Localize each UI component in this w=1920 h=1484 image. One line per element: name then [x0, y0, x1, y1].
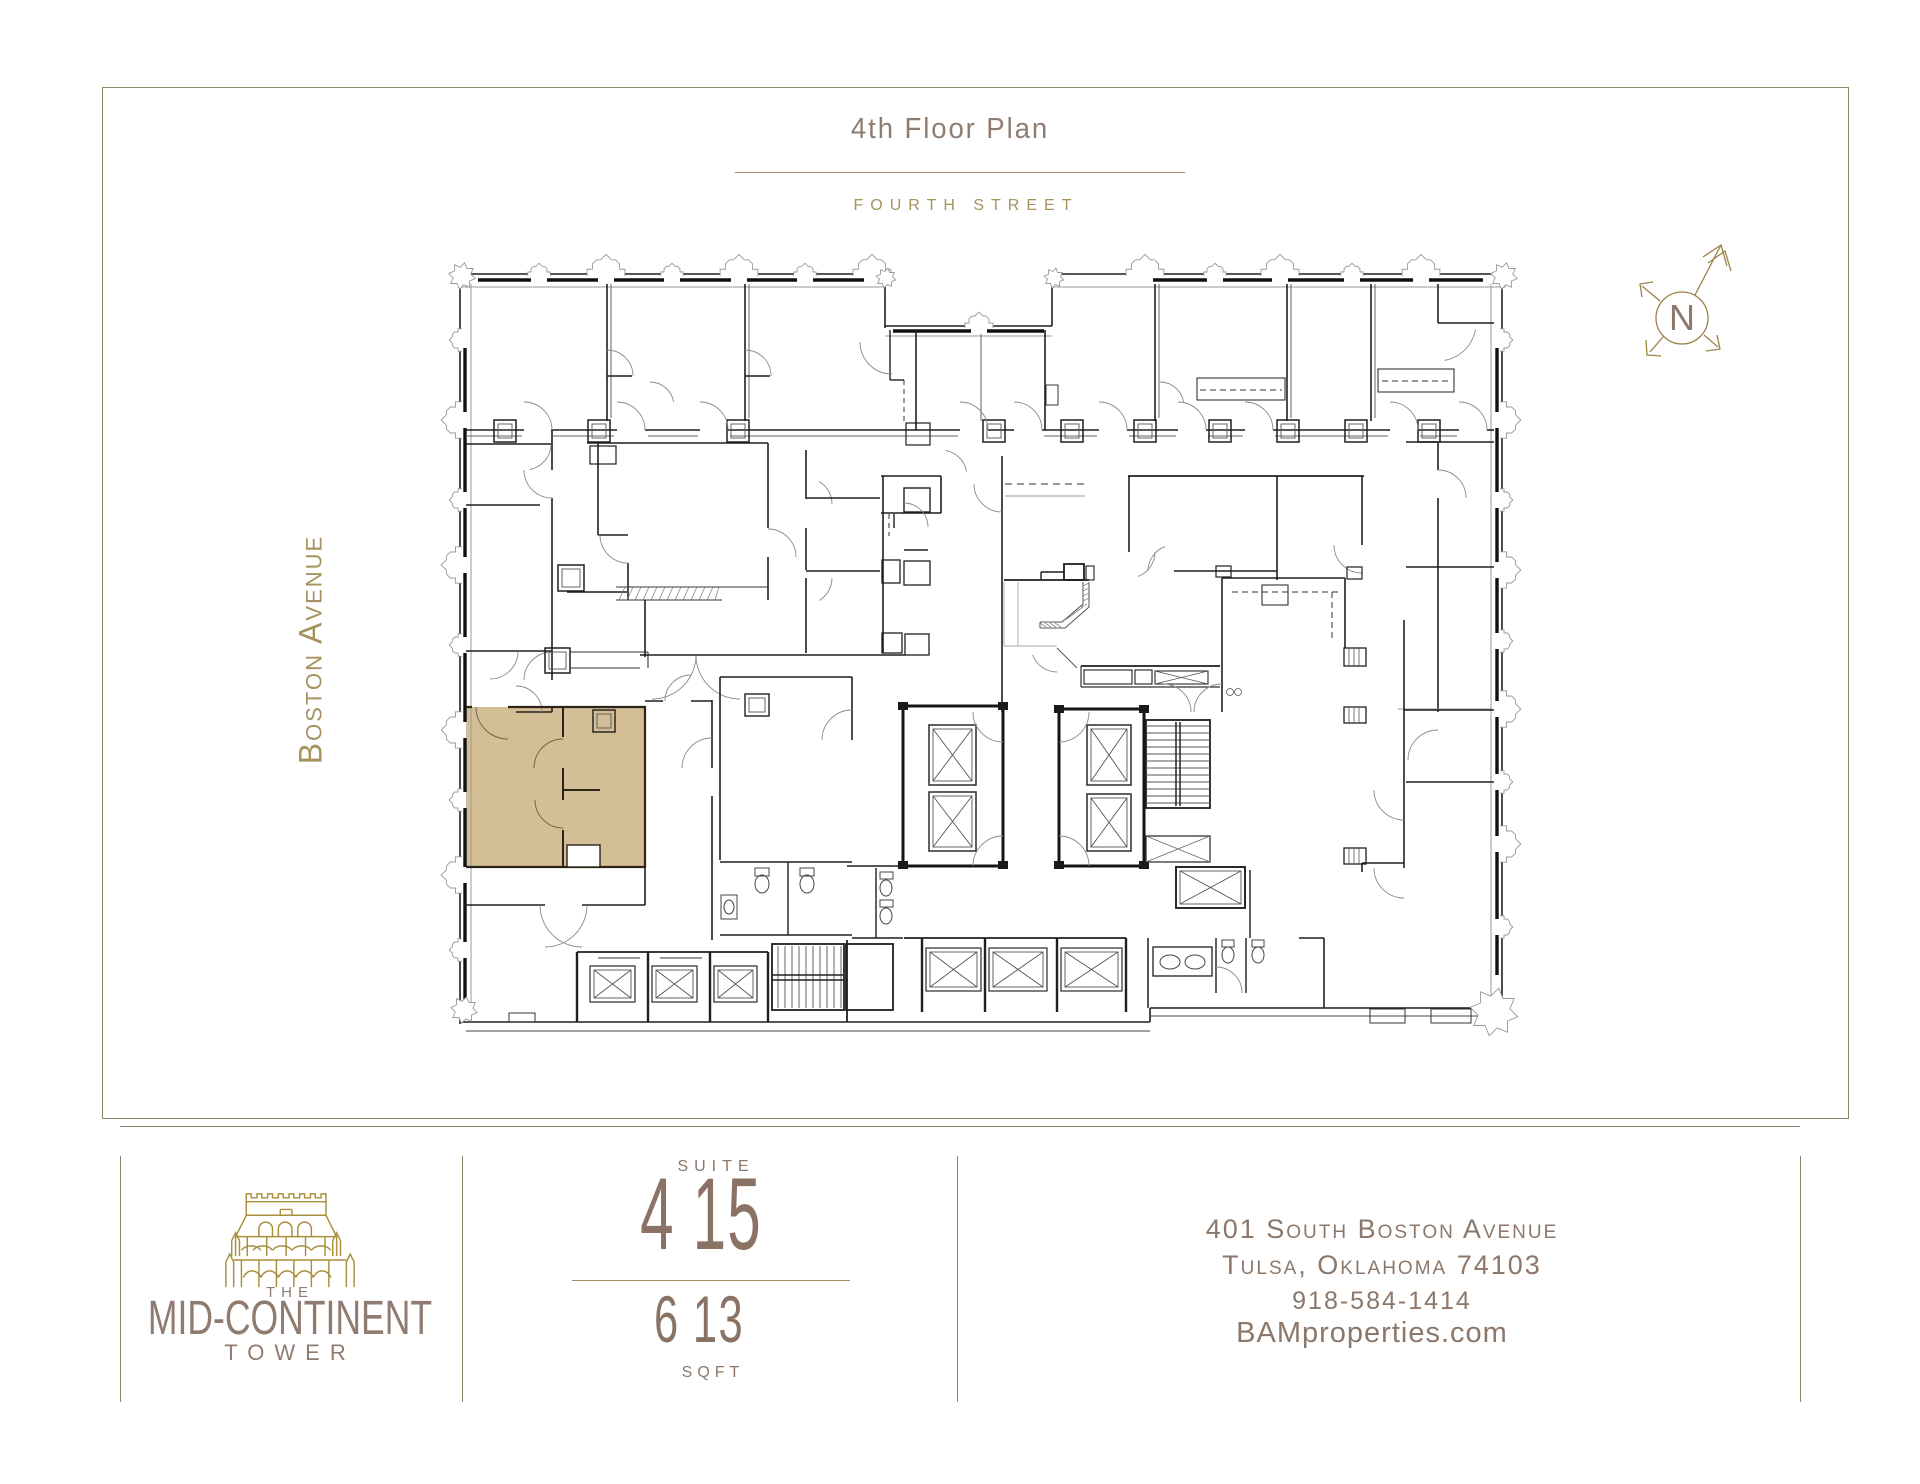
svg-text:N: N: [1669, 297, 1695, 338]
